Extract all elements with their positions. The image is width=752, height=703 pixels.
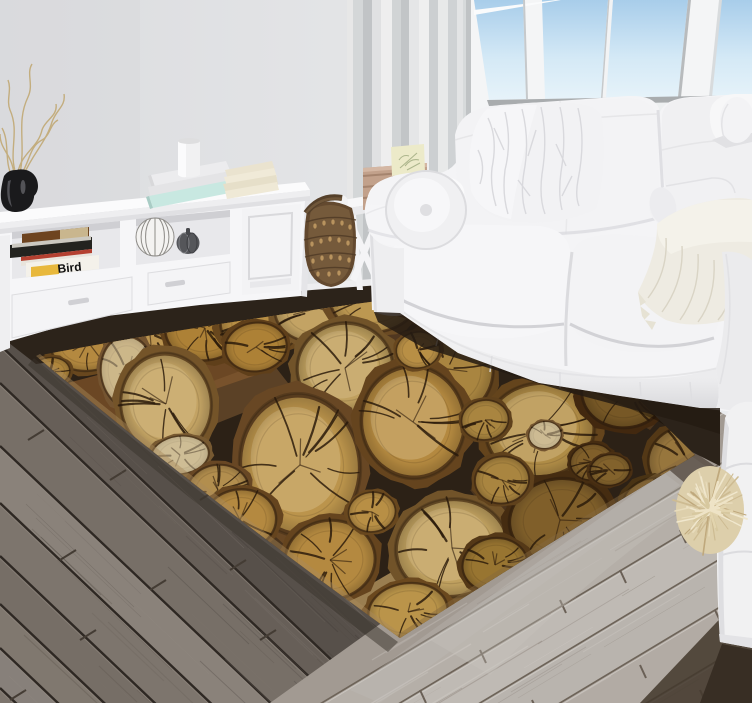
svg-text:Bird: Bird [57,260,82,276]
